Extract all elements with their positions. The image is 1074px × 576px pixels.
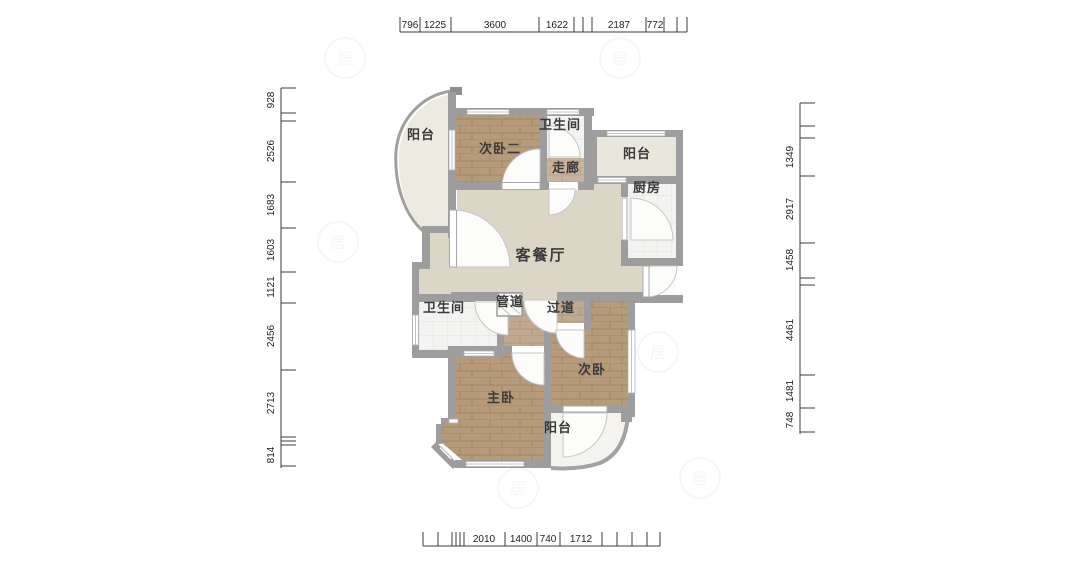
room-label-bedroom-2: 次卧二 bbox=[479, 141, 521, 156]
door-leaf-entry bbox=[643, 266, 649, 297]
dimension-label: 4461 bbox=[785, 318, 796, 341]
svg-text:居: 居 bbox=[692, 471, 708, 488]
dimension-label: 1603 bbox=[266, 238, 277, 261]
svg-text:居: 居 bbox=[337, 51, 353, 68]
dimension-chain-right: 1349 2917 1458 4461 1481 748 bbox=[785, 103, 815, 434]
svg-text:居: 居 bbox=[510, 481, 526, 498]
dimension-label: 796 bbox=[402, 20, 419, 31]
room-label-hallway: 过道 bbox=[547, 300, 575, 315]
dimension-label: 2456 bbox=[266, 324, 277, 347]
dimension-label: 1481 bbox=[785, 379, 796, 402]
dimension-label: 1458 bbox=[785, 248, 796, 271]
floor-plan-page: 居居 居居 居居 bbox=[0, 0, 1074, 576]
dimension-label: 3600 bbox=[484, 20, 507, 31]
dimension-label: 772 bbox=[647, 20, 664, 31]
dimension-chain-left: 928 2526 1683 1603 1121 2456 2713 814 bbox=[266, 88, 296, 468]
dimension-chain-bottom: 2010 1400 740 1712 bbox=[423, 532, 660, 546]
room-label-pipe-duct: 管道 bbox=[496, 294, 524, 309]
room-label-balcony-top-right: 阳台 bbox=[623, 146, 651, 161]
room-label-corridor: 走廊 bbox=[552, 160, 580, 175]
dimension-chain-top: 796 1225 3600 1622 2187 772 bbox=[400, 17, 687, 32]
room-label-balcony-top-left: 阳台 bbox=[407, 127, 435, 142]
svg-text:居: 居 bbox=[330, 235, 346, 252]
room-label-living-dining: 客餐厅 bbox=[514, 246, 566, 264]
dimension-label: 1683 bbox=[266, 193, 277, 216]
floor-plan-svg: 居居 居居 居居 bbox=[0, 0, 1074, 576]
dimension-label: 1349 bbox=[785, 145, 796, 168]
dimension-label: 1225 bbox=[424, 20, 447, 31]
room-label-balcony-bottom: 阳台 bbox=[544, 420, 572, 435]
dimension-label: 928 bbox=[266, 91, 277, 108]
room-label-bedroom-secondary: 次卧 bbox=[578, 362, 606, 377]
dimension-label: 748 bbox=[785, 411, 796, 428]
door-leaf-living-balcony bbox=[450, 210, 457, 267]
dimension-label: 1712 bbox=[570, 534, 593, 545]
dimension-label: 1400 bbox=[510, 534, 533, 545]
dimension-label: 2713 bbox=[266, 391, 277, 414]
dimension-label: 2187 bbox=[608, 20, 631, 31]
room-label-kitchen: 厨房 bbox=[633, 180, 661, 195]
dimension-ticks-left bbox=[281, 88, 296, 466]
dimension-ticks-right bbox=[800, 103, 815, 432]
room-label-bathroom-mid: 卫生间 bbox=[423, 300, 465, 315]
dimension-label: 740 bbox=[540, 534, 557, 545]
svg-text:居: 居 bbox=[612, 51, 628, 68]
door-leaf-kitchen bbox=[622, 198, 627, 240]
door-leaf-balcony-bottom bbox=[563, 406, 607, 412]
svg-text:居: 居 bbox=[650, 345, 666, 362]
dimension-label: 1121 bbox=[266, 276, 277, 298]
dimension-label: 2526 bbox=[266, 139, 277, 162]
room-label-master-bedroom: 主卧 bbox=[487, 390, 515, 405]
dimension-label: 814 bbox=[266, 446, 277, 463]
door-leaf-bedroom-2 bbox=[502, 183, 540, 190]
dimension-label: 1622 bbox=[546, 20, 569, 31]
dimension-label: 2917 bbox=[785, 197, 796, 220]
dimension-label: 2010 bbox=[473, 534, 496, 545]
room-label-bathroom-top: 卫生间 bbox=[539, 117, 581, 132]
